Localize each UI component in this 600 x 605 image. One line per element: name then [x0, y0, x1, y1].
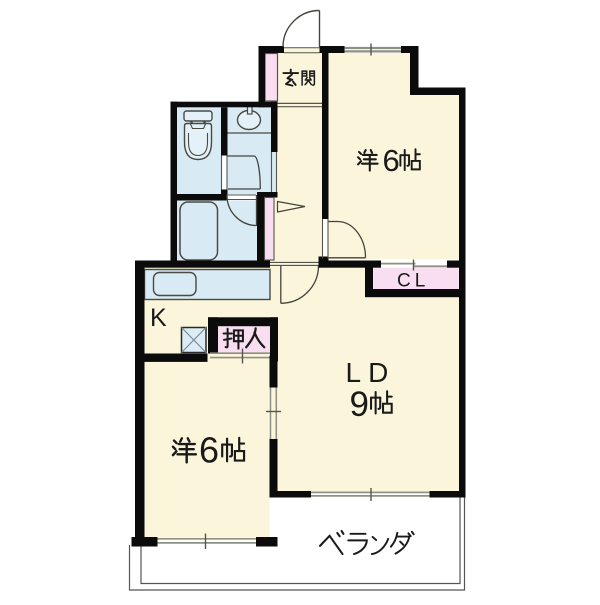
svg-text:6: 6	[383, 143, 400, 178]
svg-text:K: K	[150, 304, 167, 332]
svg-text:CL: CL	[397, 271, 429, 292]
svg-text:9: 9	[350, 385, 369, 424]
svg-text:6: 6	[199, 430, 219, 471]
svg-text:LD: LD	[346, 357, 396, 388]
